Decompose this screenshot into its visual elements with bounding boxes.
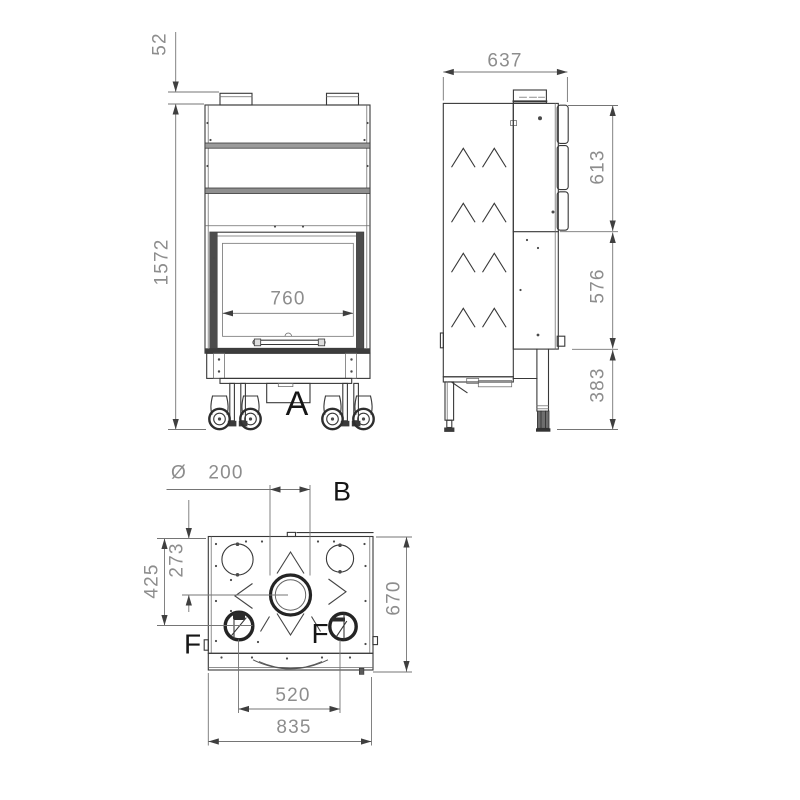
plan-rear-tab [287, 532, 295, 536]
knockout-right [326, 543, 353, 573]
side-body [440, 90, 568, 432]
dim-fan-offset: 425 [142, 563, 163, 598]
dim-front-top-collar: 52 [150, 32, 171, 56]
chevron-left [235, 584, 253, 609]
dim-overall-width: 835 [276, 717, 311, 738]
front-top-collars [220, 93, 359, 105]
front-band-lower [205, 188, 370, 194]
front-body [205, 93, 374, 429]
door-post-right [356, 232, 364, 348]
caster [209, 396, 229, 429]
fan-outlet-left [225, 612, 253, 640]
side-dimensions: 637 613 576 383 [443, 51, 618, 430]
door-sill [205, 348, 370, 353]
dim-front-total-height: 1572 [152, 238, 173, 285]
plan-dimensions: Ø 200 425 273 670 520 835 [142, 463, 413, 746]
dim-flue-offset: 273 [167, 542, 188, 577]
side-panel [443, 103, 513, 376]
door-handle [253, 339, 325, 346]
front-screw-dots [206, 122, 368, 373]
label-section-a: A [286, 385, 309, 423]
side-view: 637 613 576 383 [440, 51, 618, 432]
side-screw-dots [519, 116, 554, 336]
door-post-left [210, 232, 218, 348]
side-back-panel [513, 103, 568, 349]
dim-flue-diameter-symbol: Ø [171, 463, 187, 484]
side-top-collar [513, 90, 546, 103]
caster [322, 396, 342, 429]
dim-side-base-section: 383 [588, 367, 609, 402]
front-dimensions: 52 1572 760 [150, 32, 354, 430]
plan-view: Ø 200 425 273 670 520 835 [142, 463, 413, 746]
label-flue-b: B [333, 477, 351, 507]
slash-left [261, 617, 270, 632]
plan-screw-dots [215, 540, 367, 659]
dim-side-upper-section: 613 [588, 149, 609, 184]
label-fan-left-f: F [184, 629, 201, 660]
chevron-right [329, 579, 347, 605]
chevron-up [277, 552, 304, 574]
knockout-left [222, 542, 253, 576]
front-view: 52 1572 760 A [150, 32, 374, 430]
door-latch [285, 333, 292, 336]
side-front-leg [444, 382, 454, 432]
plan-body [204, 532, 377, 674]
fan-outlet-right [330, 613, 356, 639]
dim-plan-depth: 670 [384, 580, 405, 615]
dim-flue-diameter-value: 200 [208, 463, 243, 484]
front-band-upper [205, 143, 370, 148]
dim-front-glass-width: 760 [270, 289, 305, 310]
chevron-down [277, 614, 304, 636]
dim-fan-spacing: 520 [275, 685, 310, 706]
side-chevron-vents [452, 148, 506, 326]
label-fan-right-f: F [311, 618, 328, 649]
side-base [443, 377, 537, 393]
fireplace-technical-drawing: 52 1572 760 A [0, 0, 800, 800]
dim-side-depth: 637 [487, 51, 522, 72]
side-rear-caster [536, 349, 550, 432]
dim-side-middle-section: 576 [588, 268, 609, 303]
technical-drawing-page: 52 1572 760 A [0, 0, 800, 800]
